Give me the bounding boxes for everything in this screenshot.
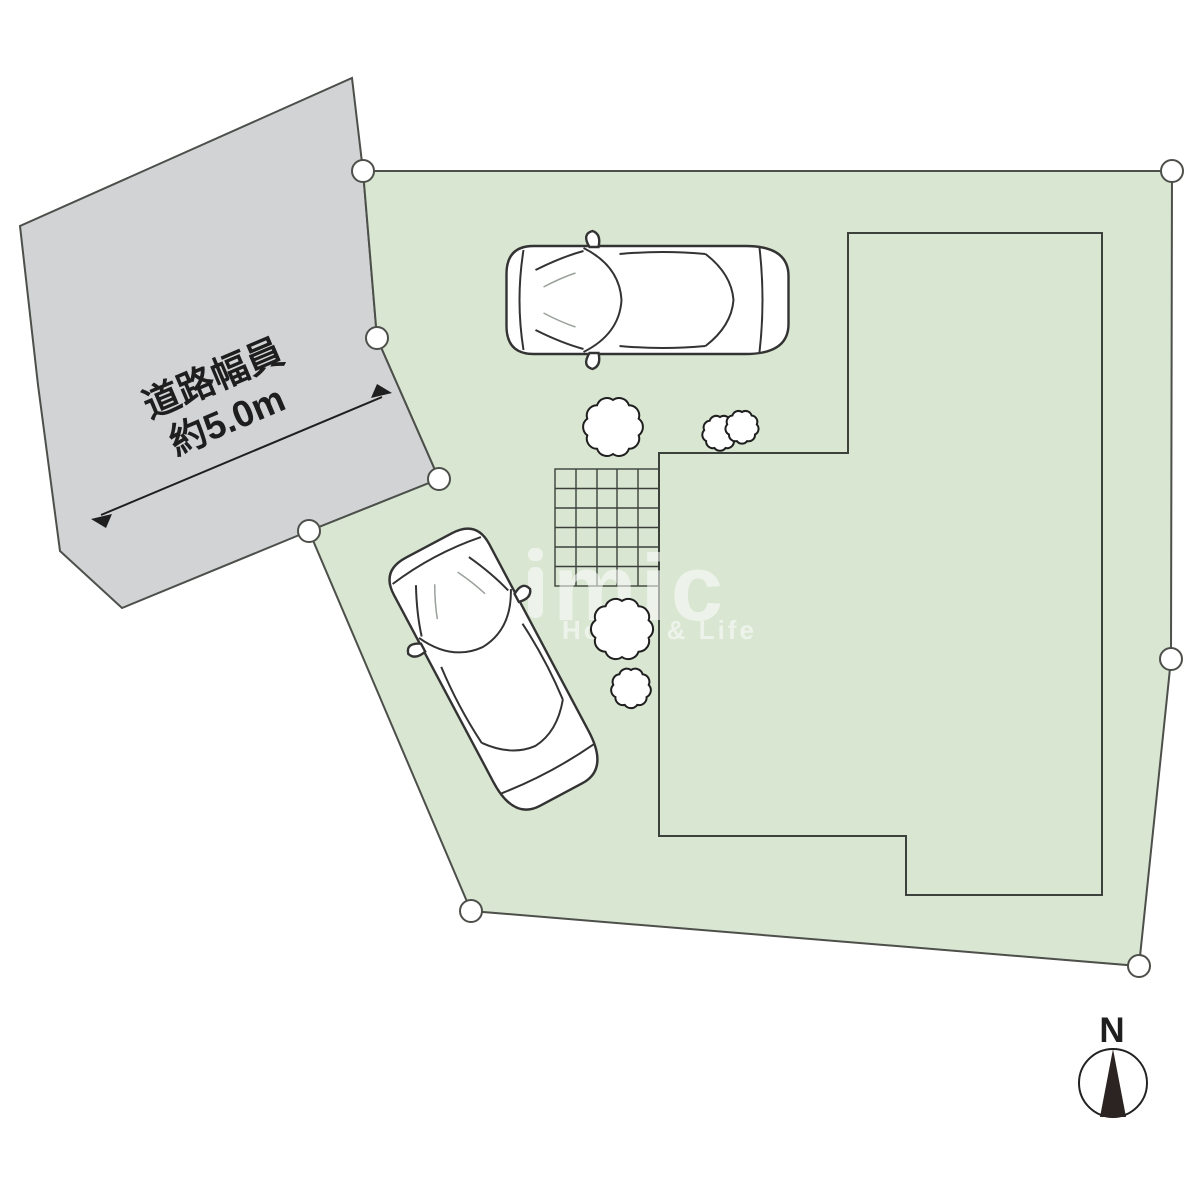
boundary-marker (352, 160, 374, 182)
watermark-logo-mark (528, 548, 543, 561)
boundary-marker (1128, 955, 1150, 977)
boundary-marker (460, 900, 482, 922)
compass: N (1079, 1011, 1147, 1117)
boundary-marker (366, 327, 388, 349)
boundary-marker (1160, 648, 1182, 670)
car-top (507, 231, 789, 369)
boundary-marker (298, 520, 320, 542)
bush-small (611, 669, 651, 708)
tree-2 (591, 599, 653, 659)
tree-1 (583, 398, 643, 456)
boundary-marker (428, 468, 450, 490)
site-plan-drawing: mic House & Life (0, 0, 1200, 1200)
boundary-marker (1161, 160, 1183, 182)
compass-north-label: N (1099, 1011, 1124, 1050)
site-plan-canvas: mic House & Life (0, 0, 1200, 1200)
bush-pair-right (725, 411, 758, 444)
